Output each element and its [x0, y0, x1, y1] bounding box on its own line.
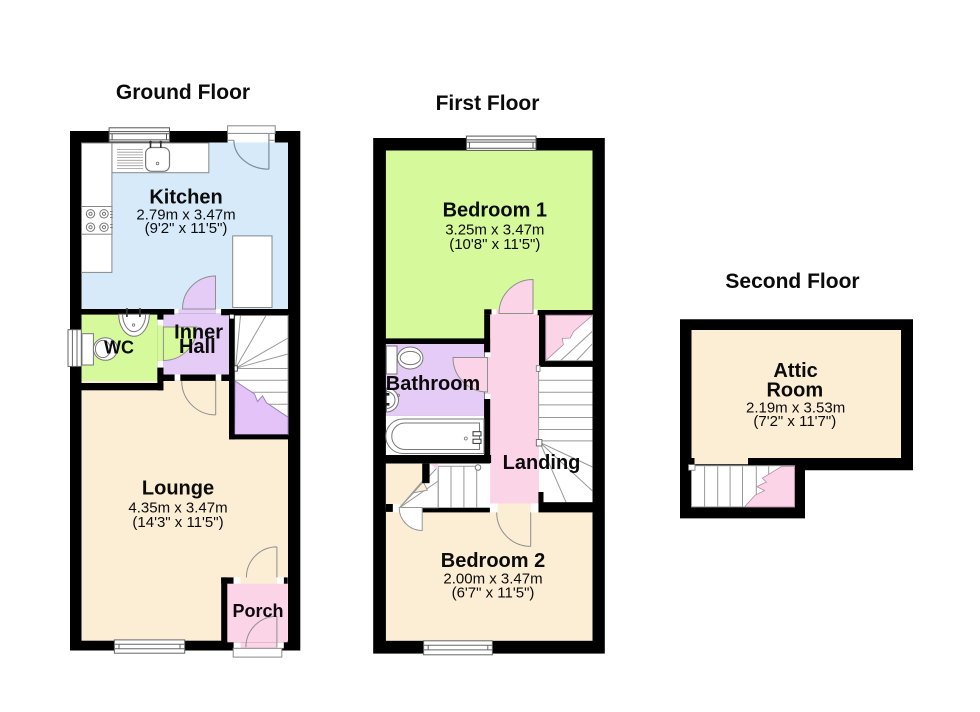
- svg-text:Second Floor: Second Floor: [725, 270, 859, 293]
- svg-text:Lounge: Lounge: [142, 478, 214, 500]
- svg-text:Room: Room: [766, 380, 823, 402]
- svg-text:Porch: Porch: [232, 601, 283, 621]
- svg-text:(10'8" x 11'5"): (10'8" x 11'5"): [449, 236, 540, 253]
- svg-text:(7'2" x 11'7"): (7'2" x 11'7"): [753, 413, 836, 430]
- svg-text:WC: WC: [104, 338, 134, 358]
- svg-text:First Floor: First Floor: [436, 92, 540, 115]
- svg-text:Bathroom: Bathroom: [386, 373, 480, 395]
- svg-text:(14'3" x 11'5"): (14'3" x 11'5"): [132, 514, 223, 531]
- svg-text:Landing: Landing: [503, 452, 581, 474]
- svg-text:Ground Floor: Ground Floor: [116, 81, 250, 104]
- svg-text:Kitchen: Kitchen: [149, 187, 222, 209]
- svg-text:(6'7" x 11'5"): (6'7" x 11'5"): [452, 585, 535, 602]
- svg-text:Bedroom 2: Bedroom 2: [441, 550, 545, 572]
- svg-text:Hall: Hall: [179, 336, 216, 358]
- svg-text:(9'2" x 11'5"): (9'2" x 11'5"): [145, 220, 228, 237]
- svg-text:Bedroom 1: Bedroom 1: [443, 200, 547, 222]
